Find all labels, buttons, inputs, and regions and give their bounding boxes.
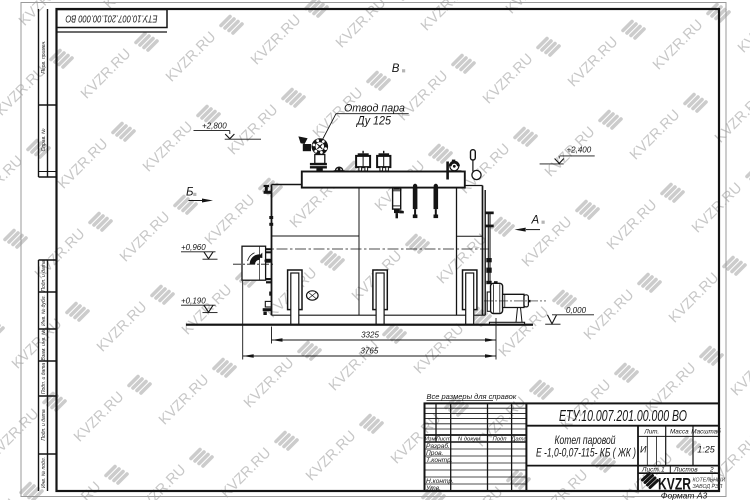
svg-text:Инв. № подл.: Инв. № подл. [41,457,47,488]
svg-text:1:25: 1:25 [697,445,716,455]
svg-text:В: В [392,63,400,75]
svg-text:Подп. и дата: Подп. и дата [41,409,47,441]
svg-text:Е -1,0-0,07-115- КБ ( ЖК ): Е -1,0-0,07-115- КБ ( ЖК ) [536,448,636,460]
svg-text:Все размеры для справок: Все размеры для справок [427,392,517,401]
svg-text:Формат А3: Формат А3 [661,491,708,500]
svg-text:Взам. инв. №: Взам. инв. № [41,329,47,361]
svg-text:Масштаб: Масштаб [691,428,721,436]
svg-text:И: И [640,445,647,455]
svg-text:Подп. и дата: Подп. и дата [41,260,47,292]
svg-text:+0,960: +0,960 [181,243,206,252]
svg-text:КОТЕЛЬНЫЙ: КОТЕЛЬНЫЙ [693,476,726,484]
svg-text:Инв. № дубл.: Инв. № дубл. [41,295,47,326]
svg-text:N докум: N докум [458,437,480,443]
svg-text:Подп. и дата: Подп. и дата [41,363,47,395]
svg-text:Котел паровой: Котел паровой [555,435,616,447]
svg-text:Н.контр.: Н.контр. [426,478,454,485]
svg-text:Изм: Изм [425,437,436,443]
svg-text:Утв.: Утв. [425,485,441,492]
svg-text:Лист: Лист [435,437,451,443]
svg-text:1: 1 [661,467,665,474]
svg-text:Ду 125: Ду 125 [355,116,391,128]
svg-text:А: А [531,214,540,226]
svg-text:Б: Б [186,187,194,199]
svg-text:Пров.: Пров. [426,450,444,457]
svg-text:ЕТУ.10.007.201.00.000 ВО: ЕТУ.10.007.201.00.000 ВО [559,408,687,425]
svg-text:Разраб.: Разраб. [426,442,450,450]
svg-text:+0,190: +0,190 [181,296,206,305]
svg-text:ЗАВОД РЭП: ЗАВОД РЭП [693,484,723,490]
svg-text:+2,400: +2,400 [567,145,592,154]
svg-text:Лит.: Лит. [643,429,659,436]
svg-text:0,000: 0,000 [566,306,587,315]
svg-text:3765: 3765 [361,347,379,356]
svg-text:2: 2 [709,467,714,474]
svg-text:ЕТУ.10.007.201.00.000 ВО: ЕТУ.10.007.201.00.000 ВО [66,13,158,25]
svg-text:Справ. №: Справ. № [41,128,47,151]
svg-text:Листов: Листов [673,467,698,474]
svg-text:Перв. примен.: Перв. примен. [41,40,47,73]
svg-text:Т.контр.: Т.контр. [426,457,453,464]
svg-text:Подп: Подп [492,437,507,443]
svg-text:Дата: Дата [510,437,527,443]
svg-text:Масса: Масса [670,429,689,436]
svg-text:+2,800: +2,800 [202,121,227,130]
svg-text:3325: 3325 [361,331,379,340]
svg-text:Отвод пара: Отвод пара [344,103,405,115]
